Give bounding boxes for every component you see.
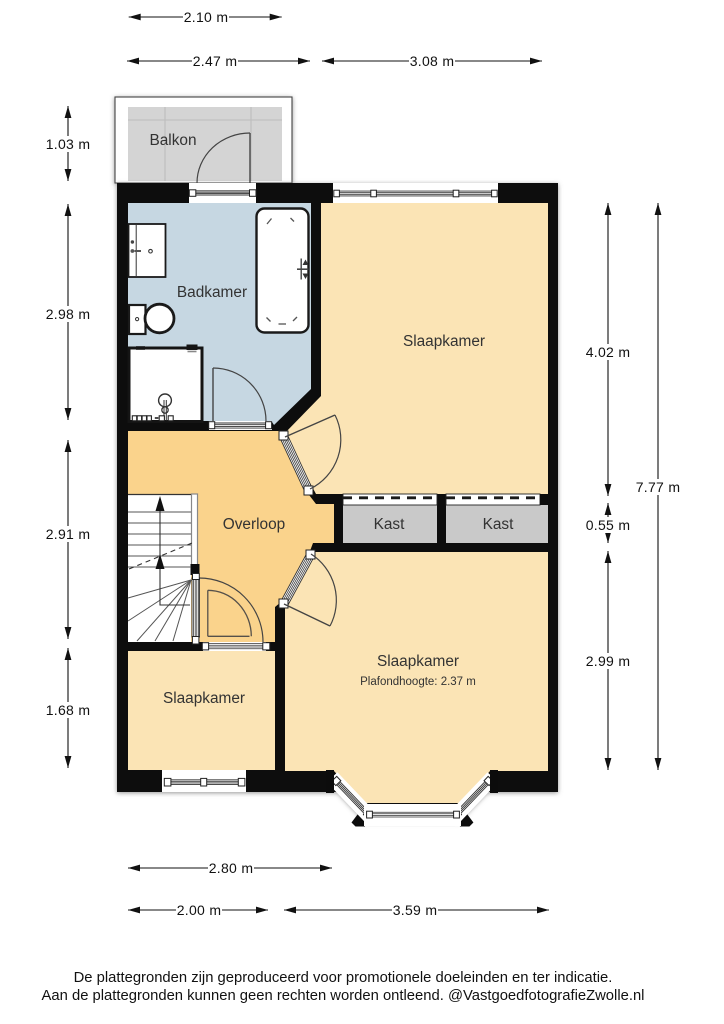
svg-text:Overloop: Overloop (223, 516, 285, 533)
svg-text:Plafondhoogte: 2.37 m: Plafondhoogte: 2.37 m (360, 676, 476, 688)
svg-text:2.10 m: 2.10 m (184, 9, 229, 25)
svg-text:1.68 m: 1.68 m (46, 702, 91, 718)
svg-text:Aan de plattegronden kunnen ge: Aan de plattegronden kunnen geen rechten… (42, 988, 645, 1004)
svg-text:3.59 m: 3.59 m (393, 902, 438, 918)
svg-text:Balkon: Balkon (149, 132, 196, 149)
svg-text:2.98 m: 2.98 m (46, 306, 91, 322)
svg-text:0.55 m: 0.55 m (586, 517, 631, 533)
svg-text:Kast: Kast (374, 516, 406, 533)
svg-text:De plattegronden zijn geproduc: De plattegronden zijn geproduceerd voor … (74, 970, 613, 986)
svg-text:2.00 m: 2.00 m (177, 902, 222, 918)
svg-text:2.80 m: 2.80 m (209, 860, 254, 876)
svg-text:2.99 m: 2.99 m (586, 653, 631, 669)
svg-text:Badkamer: Badkamer (177, 284, 247, 301)
svg-text:Slaapkamer: Slaapkamer (403, 333, 485, 350)
svg-text:3.08 m: 3.08 m (410, 53, 455, 69)
svg-text:4.02 m: 4.02 m (586, 344, 631, 360)
svg-text:1.03 m: 1.03 m (46, 136, 91, 152)
svg-text:7.77 m: 7.77 m (636, 479, 681, 495)
svg-text:Slaapkamer: Slaapkamer (377, 653, 459, 670)
svg-text:Kast: Kast (483, 516, 515, 533)
svg-text:2.91 m: 2.91 m (46, 526, 91, 542)
svg-text:Slaapkamer: Slaapkamer (163, 690, 245, 707)
svg-text:2.47 m: 2.47 m (193, 53, 238, 69)
